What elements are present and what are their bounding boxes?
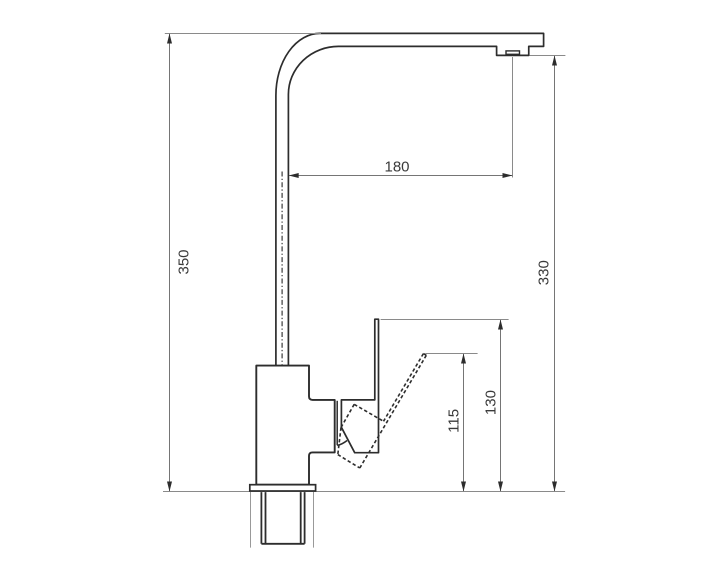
svg-text:180: 180 (384, 159, 409, 176)
svg-text:130: 130 (482, 390, 499, 415)
svg-text:330: 330 (536, 260, 553, 285)
svg-text:115: 115 (445, 409, 462, 433)
svg-text:350: 350 (176, 249, 193, 274)
